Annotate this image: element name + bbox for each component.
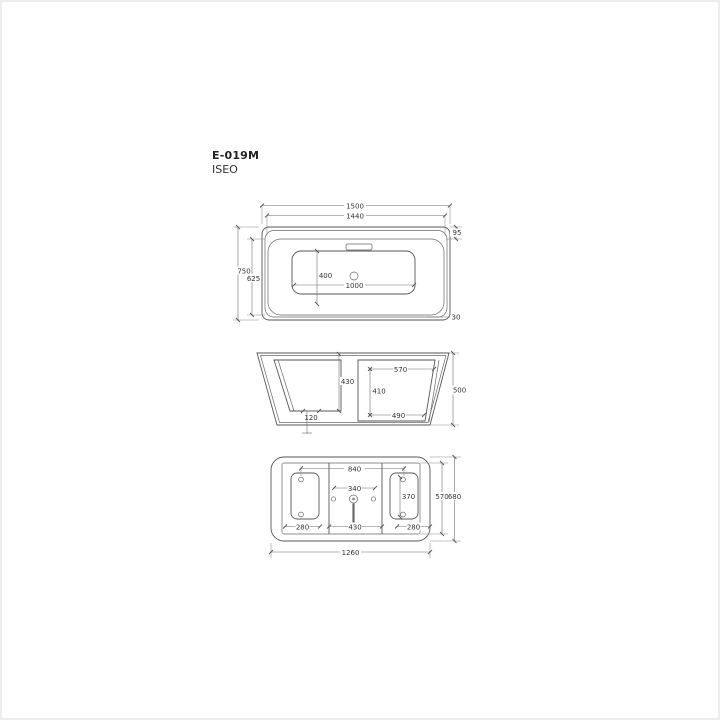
- left-mounting-pad: [291, 473, 319, 519]
- drawing-sheet: E-019M ISEO 1500 14: [0, 0, 720, 720]
- dim-plan-inner-length: 1440: [346, 213, 364, 221]
- dim-bottom-right-pad: 280: [407, 524, 420, 532]
- dim-bottom-center-width: 430: [348, 524, 361, 532]
- section-view: 430 120 570 410 490 500: [257, 353, 467, 434]
- dim-section-bottom-width: 490: [392, 412, 405, 420]
- dim-plan-inner-width: 625: [247, 275, 260, 283]
- dim-section-drain-offset: 120: [304, 414, 317, 422]
- dim-bottom-faucet-span: 340: [348, 485, 361, 493]
- dim-bottom-outer-width: 680: [448, 493, 461, 501]
- technical-drawing: 1500 1440 95 750 625: [2, 2, 720, 720]
- tub-outer-edge: [262, 227, 450, 320]
- dim-plan-basin-length: 1000: [346, 282, 364, 290]
- dim-plan-edge-radius: 30: [452, 314, 461, 322]
- dim-bottom-hole-span: 840: [348, 466, 361, 474]
- dim-bottom-base-length: 1260: [342, 549, 360, 557]
- dim-section-inner-depth: 410: [372, 388, 385, 396]
- shell-inner: [261, 356, 447, 423]
- dim-plan-basin-width: 400: [319, 272, 332, 280]
- dim-plan-rim-inset: 95: [453, 229, 462, 237]
- mount-hole: [401, 477, 406, 482]
- dim-bottom-left-pad: 280: [296, 524, 309, 532]
- left-cavity: [274, 360, 341, 411]
- dim-bottom-inner-width: 570: [435, 493, 448, 501]
- mount-hole: [401, 512, 406, 517]
- mount-hole: [331, 497, 335, 501]
- tub-rim-ledge: [268, 239, 444, 315]
- drain-hole: [350, 272, 358, 280]
- dim-section-top-width: 570: [394, 366, 407, 374]
- dim-section-left-depth: 430: [341, 378, 354, 386]
- drain-outlet-center: [352, 498, 355, 501]
- dim-section-overall-height: 500: [453, 387, 466, 395]
- mount-hole: [371, 497, 375, 501]
- plan-view: 1500 1440 95 750 625: [233, 202, 463, 322]
- bottom-view: 840 340 370 430 280 280: [271, 457, 462, 558]
- mount-hole: [299, 477, 304, 482]
- overflow-slot: [346, 244, 372, 250]
- mount-hole: [299, 512, 304, 517]
- shell-outer: [257, 353, 449, 425]
- dim-plan-outer-length: 1500: [346, 203, 364, 211]
- dim-bottom-pad-height: 370: [402, 493, 415, 501]
